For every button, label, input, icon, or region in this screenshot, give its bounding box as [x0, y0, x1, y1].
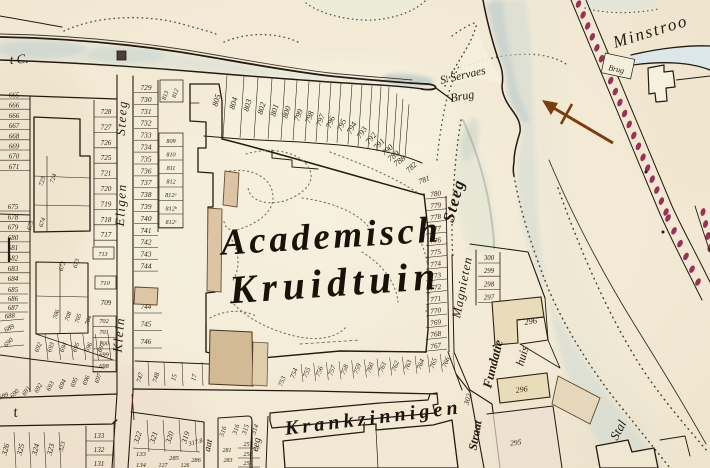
svg-text:668: 668: [9, 132, 20, 140]
svg-text:725: 725: [101, 154, 112, 162]
svg-text:679: 679: [8, 224, 19, 232]
svg-text:710: 710: [100, 280, 110, 287]
svg-text:286: 286: [191, 457, 201, 464]
svg-text:744: 744: [141, 262, 152, 271]
svg-text:738: 738: [141, 190, 152, 199]
svg-text:709: 709: [101, 299, 112, 307]
svg-text:767: 767: [430, 341, 442, 350]
svg-text:127: 127: [159, 463, 169, 468]
svg-text:675: 675: [8, 203, 19, 211]
svg-text:666: 666: [9, 112, 20, 120]
svg-text:698: 698: [99, 363, 109, 370]
svg-text:745: 745: [141, 321, 152, 329]
svg-text:727: 727: [101, 123, 112, 131]
svg-text:812ᶜ: 812ᶜ: [166, 219, 178, 226]
svg-text:134: 134: [136, 462, 147, 468]
svg-text:t C.: t C.: [9, 51, 29, 67]
svg-text:812ᵃ: 812ᵃ: [165, 192, 177, 199]
svg-text:769: 769: [430, 318, 442, 327]
svg-text:687: 687: [8, 305, 19, 312]
svg-text:667: 667: [9, 122, 20, 130]
svg-text:259: 259: [243, 460, 252, 467]
svg-text:742: 742: [141, 238, 152, 247]
svg-text:728: 728: [101, 108, 112, 116]
svg-text:297: 297: [484, 295, 495, 302]
svg-text:729: 729: [141, 83, 152, 92]
svg-text:735: 735: [141, 154, 152, 163]
svg-text:688: 688: [4, 313, 15, 321]
svg-text:298: 298: [484, 281, 495, 288]
svg-text:740: 740: [141, 214, 152, 223]
svg-text:283: 283: [224, 458, 233, 464]
svg-text:718: 718: [101, 216, 112, 224]
svg-text:684: 684: [8, 275, 19, 283]
svg-text:730: 730: [141, 95, 152, 104]
svg-text:746: 746: [141, 338, 152, 346]
svg-text:721: 721: [101, 170, 112, 178]
svg-text:739: 739: [141, 202, 152, 211]
svg-text:296: 296: [515, 384, 528, 395]
svg-text:685: 685: [8, 287, 19, 294]
svg-text:665: 665: [9, 92, 20, 100]
svg-text:Eligen: Eligen: [112, 183, 129, 228]
svg-text:683: 683: [8, 265, 19, 273]
svg-text:Steeg: Steeg: [113, 99, 130, 136]
svg-text:678: 678: [8, 213, 19, 221]
svg-text:670: 670: [9, 153, 20, 161]
svg-text:770: 770: [430, 306, 442, 315]
svg-text:132: 132: [94, 446, 105, 454]
svg-text:810: 810: [166, 152, 176, 159]
svg-text:741: 741: [141, 226, 152, 235]
svg-text:732: 732: [141, 119, 152, 128]
svg-text:126: 126: [181, 463, 190, 468]
svg-text:780: 780: [430, 189, 442, 198]
svg-text:726: 726: [101, 139, 112, 147]
svg-text:720: 720: [101, 185, 112, 193]
svg-text:258: 258: [243, 451, 253, 458]
svg-text:133: 133: [136, 451, 147, 458]
svg-text:281: 281: [223, 448, 232, 454]
svg-text:737: 737: [141, 178, 152, 187]
svg-text:686: 686: [8, 296, 19, 303]
svg-text:666: 666: [9, 102, 20, 110]
svg-text:811: 811: [167, 165, 176, 172]
svg-text:Klein: Klein: [109, 316, 127, 354]
svg-text:733: 733: [141, 131, 152, 140]
svg-text:734: 734: [141, 143, 152, 152]
svg-text:295: 295: [510, 437, 522, 447]
svg-text:701: 701: [99, 329, 109, 336]
svg-text:285: 285: [169, 455, 180, 462]
svg-text:719: 719: [101, 200, 112, 208]
svg-text:768: 768: [430, 330, 442, 339]
svg-text:671: 671: [9, 163, 20, 171]
svg-text:812: 812: [166, 179, 175, 186]
svg-text:669: 669: [9, 143, 20, 151]
svg-text:736: 736: [141, 166, 152, 175]
svg-text:713: 713: [98, 251, 107, 258]
svg-text:731: 731: [141, 107, 152, 116]
svg-text:717: 717: [101, 231, 112, 239]
svg-text:296: 296: [524, 315, 539, 327]
svg-text:702: 702: [99, 318, 109, 325]
svg-text:131: 131: [94, 460, 105, 468]
svg-text:300: 300: [483, 255, 495, 262]
svg-text:133: 133: [94, 432, 105, 440]
svg-text:743: 743: [141, 250, 152, 259]
svg-text:809: 809: [166, 138, 175, 145]
svg-text:299: 299: [484, 268, 495, 275]
svg-text:812ᵇ: 812ᵇ: [166, 206, 177, 213]
